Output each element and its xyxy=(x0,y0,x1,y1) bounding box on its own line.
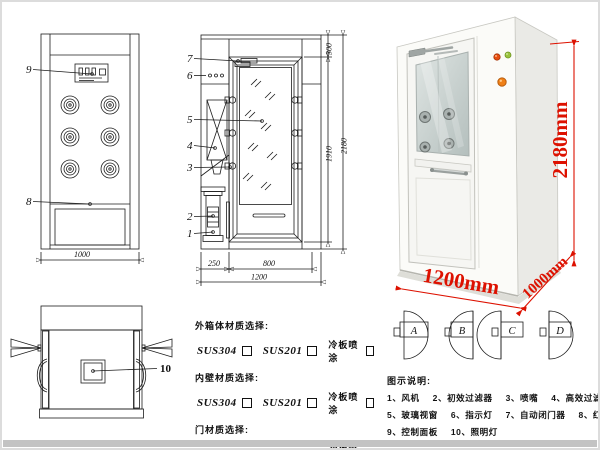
coldplate-checkbox[interactable] xyxy=(366,346,374,356)
width-dimensions: 250 800 1200 xyxy=(201,252,321,286)
plan-outline xyxy=(40,306,144,418)
material-selection: 外箱体材质选择: SUS304 SUS201 冷板喷涂 内壁材质选择: SUS3… xyxy=(195,319,385,450)
legend-item: 6、指示灯 xyxy=(451,410,493,420)
callout-6: 6 xyxy=(187,70,206,82)
height-dimensions: 300 1910 2180 xyxy=(304,35,349,249)
sus201-checkbox[interactable] xyxy=(307,398,317,408)
nozzle-icon xyxy=(101,160,119,178)
sus201-checkbox[interactable] xyxy=(307,346,317,356)
svg-text:A: A xyxy=(410,326,418,337)
legend-line: 5、玻璃视窗6、指示灯7、自动闭门器8、红外线感应器 xyxy=(387,409,600,421)
nozzle-icon xyxy=(61,160,79,178)
door-style-d[interactable]: D xyxy=(540,311,573,359)
product-photo: 2180mm 1200mm 1000mm xyxy=(380,10,600,320)
legend-title: 图示说明: xyxy=(387,374,600,387)
svg-text:4: 4 xyxy=(187,140,193,152)
door-swing-options: A B C D xyxy=(385,305,585,367)
ceiling-lamp xyxy=(81,360,105,383)
door-style-a[interactable]: A xyxy=(394,311,428,359)
height-dimension-label: 2180mm xyxy=(548,101,572,178)
legend-item: 9、控制面板 xyxy=(387,427,438,437)
svg-text:1: 1 xyxy=(187,228,193,240)
material-section-title: 外箱体材质选择: xyxy=(195,319,385,332)
sus304-checkbox[interactable] xyxy=(242,398,252,408)
glass-door xyxy=(229,57,302,242)
legend-item: 10、照明灯 xyxy=(451,427,498,437)
legend-line: 9、控制面板10、照明灯 xyxy=(387,426,600,438)
option-label: 冷板喷涂 xyxy=(328,390,360,416)
option-label: 冷板喷涂 xyxy=(328,338,360,364)
front-view-drawing: 9 8 1000 xyxy=(22,24,172,274)
svg-text:7: 7 xyxy=(187,53,193,65)
nozzles xyxy=(61,96,119,178)
svg-text:10: 10 xyxy=(160,363,172,375)
nozzle-icon xyxy=(101,96,119,114)
svg-text:300: 300 xyxy=(325,43,334,56)
legend-item: 2、初效过滤器 xyxy=(433,393,493,403)
svg-text:5: 5 xyxy=(187,114,193,126)
coldplate-checkbox[interactable] xyxy=(366,398,374,408)
fan-filter-assembly xyxy=(201,187,230,242)
green-indicator-light xyxy=(505,52,511,58)
callout-9: 9 xyxy=(26,64,93,76)
indicator-lights xyxy=(209,74,224,77)
material-options-row: SUS304 SUS201 冷板喷涂 xyxy=(197,338,385,364)
svg-text:B: B xyxy=(459,326,466,337)
svg-text:250: 250 xyxy=(208,259,220,268)
legend-item: 8、红外线感应器 xyxy=(579,410,600,420)
svg-text:3: 3 xyxy=(186,162,193,174)
spec-sheet-page: 9 8 1000 xyxy=(0,0,600,450)
nozzle-icon xyxy=(61,96,79,114)
page-bottom-edge xyxy=(3,440,597,447)
legend-item: 7、自动闭门器 xyxy=(506,410,566,420)
legend-item: 4、高效过滤器 xyxy=(551,393,600,403)
red-indicator-light xyxy=(494,54,500,60)
glass-hatch xyxy=(243,79,277,190)
door-style-c[interactable]: C xyxy=(477,311,523,359)
svg-text:1910: 1910 xyxy=(325,146,334,162)
svg-text:2180: 2180 xyxy=(340,138,349,154)
svg-text:6: 6 xyxy=(187,70,193,82)
door-hinge-left xyxy=(11,339,47,392)
svg-text:8: 8 xyxy=(26,196,32,208)
section-view-drawing: 7 6 5 4 3 2 1 xyxy=(185,24,360,294)
option-label: SUS304 xyxy=(197,397,237,409)
callout-10: 10 xyxy=(92,363,172,375)
nozzle-icon xyxy=(61,128,79,146)
svg-text:D: D xyxy=(555,326,564,337)
svg-text:1200: 1200 xyxy=(251,273,267,282)
svg-text:800: 800 xyxy=(263,259,275,268)
svg-text:C: C xyxy=(508,326,516,337)
door-style-b[interactable]: B xyxy=(445,311,473,359)
legend-item: 1、风机 xyxy=(387,393,420,403)
top-view-drawing: 10 xyxy=(10,297,188,427)
callout-5: 5 xyxy=(187,114,263,126)
option-label: SUS304 xyxy=(197,345,237,357)
option-label: SUS201 xyxy=(263,345,303,357)
return-air-grille xyxy=(50,204,130,245)
material-options-row: SUS304 SUS201 冷板喷涂 xyxy=(197,390,385,416)
callout-3: 3 xyxy=(186,162,231,174)
callout-8: 8 xyxy=(26,196,91,208)
svg-text:1000: 1000 xyxy=(74,250,90,259)
cabinet-outline xyxy=(41,34,139,249)
svg-text:2: 2 xyxy=(187,211,193,223)
material-section-title: 门材质选择: xyxy=(195,423,385,436)
nozzle-icon xyxy=(101,128,119,146)
legend-line: 1、风机2、初效过滤器3、喷嘴4、高效过滤器 xyxy=(387,392,600,404)
option-label: SUS201 xyxy=(263,397,303,409)
svg-text:9: 9 xyxy=(26,64,32,76)
emergency-button xyxy=(498,78,506,86)
material-section-title: 内壁材质选择: xyxy=(195,371,385,384)
width-dimension: 1000 xyxy=(41,250,139,264)
legend-item: 3、喷嘴 xyxy=(506,393,539,403)
legend-item: 5、玻璃视窗 xyxy=(387,410,438,420)
sus304-checkbox[interactable] xyxy=(242,346,252,356)
side-nozzles xyxy=(225,97,302,169)
legend: 图示说明: 1、风机2、初效过滤器3、喷嘴4、高效过滤器 5、玻璃视窗6、指示灯… xyxy=(387,374,600,443)
